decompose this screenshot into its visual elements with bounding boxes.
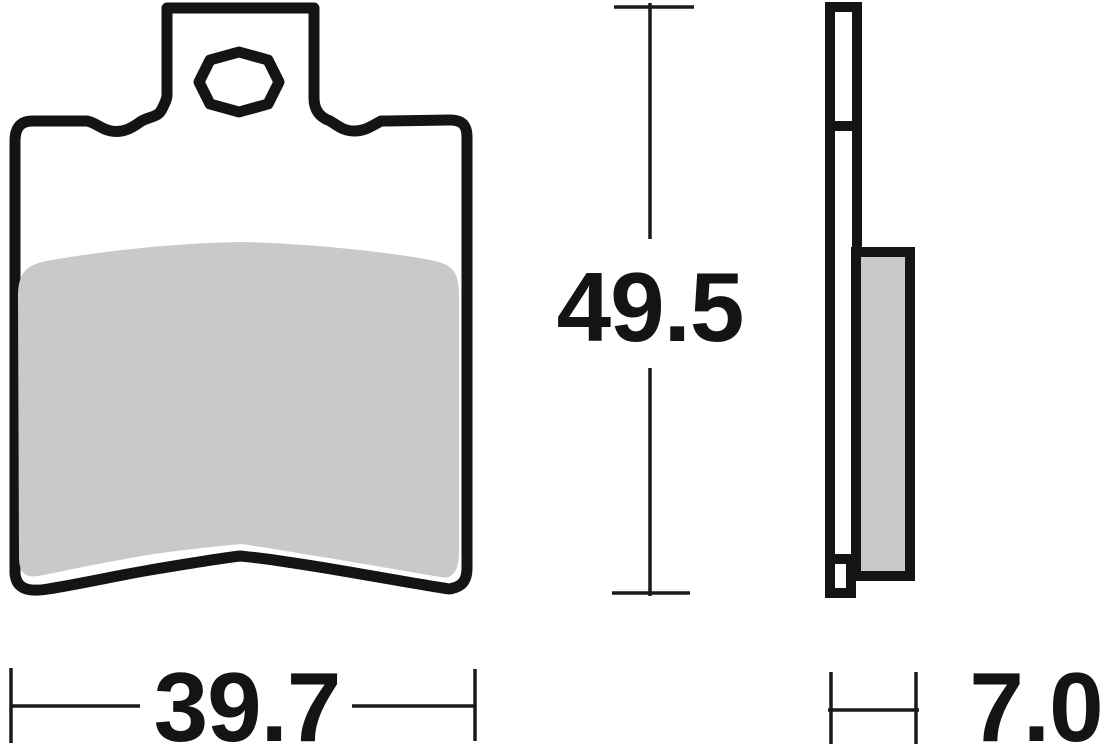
drawing-canvas: 49.5 39.7 7.0 bbox=[0, 0, 1108, 745]
side-view bbox=[826, 7, 910, 593]
thickness-dimension-label: 7.0 bbox=[969, 652, 1102, 745]
height-dimension-label: 49.5 bbox=[557, 252, 744, 362]
brake-pad-technical-drawing: 49.5 39.7 7.0 bbox=[0, 0, 1108, 745]
thickness-dimension: 7.0 bbox=[828, 652, 1103, 745]
height-dimension: 49.5 bbox=[557, 3, 744, 596]
mounting-hole bbox=[199, 52, 279, 112]
width-dimension-label: 39.7 bbox=[154, 652, 341, 745]
side-view-friction-material bbox=[856, 252, 910, 576]
front-view bbox=[15, 8, 467, 590]
front-view-friction-material bbox=[18, 242, 459, 578]
width-dimension: 39.7 bbox=[11, 652, 475, 745]
